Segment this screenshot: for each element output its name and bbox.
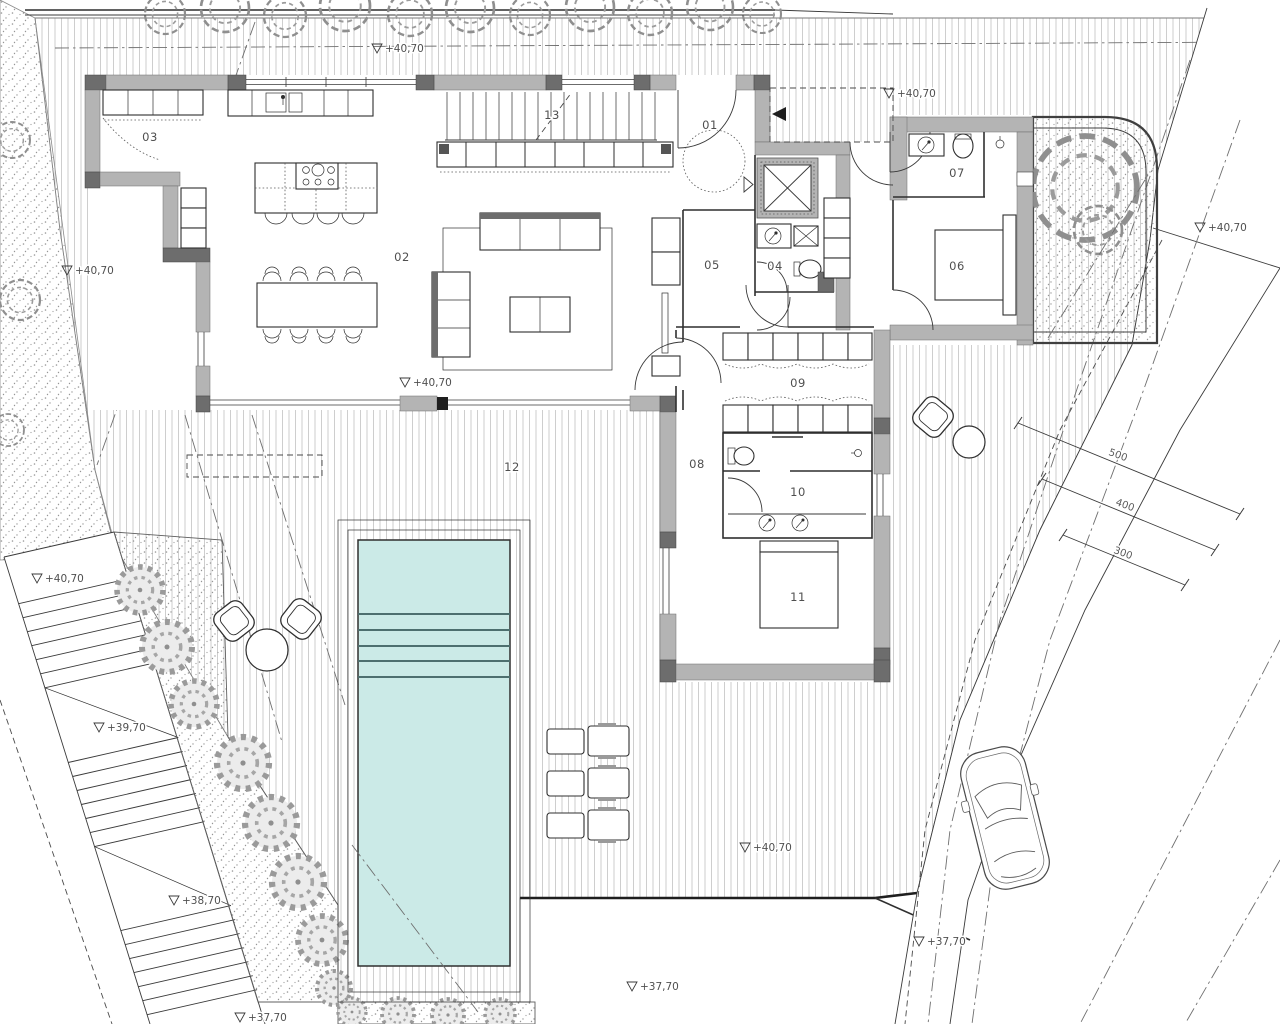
svg-text:+40,70: +40,70 xyxy=(75,265,114,277)
svg-text:+40,70: +40,70 xyxy=(45,573,84,585)
room-label-08: 08 xyxy=(689,457,705,471)
floor-plan-page: 500 400 300 xyxy=(0,0,1280,1024)
bedroom-06 xyxy=(935,215,1016,315)
svg-text:+37,70: +37,70 xyxy=(640,981,679,993)
svg-text:+40,70: +40,70 xyxy=(385,43,424,55)
patio-table xyxy=(246,629,288,671)
svg-text:+40,70: +40,70 xyxy=(897,88,936,100)
svg-text:+39,70: +39,70 xyxy=(107,722,146,734)
room-label-01: 01 xyxy=(702,118,718,132)
garden-court xyxy=(1033,117,1157,343)
room-label-10: 10 xyxy=(790,485,806,499)
elevation-triangle-icon xyxy=(627,982,637,991)
room-label-09: 09 xyxy=(790,376,806,390)
room-label-13: 13 xyxy=(544,108,560,122)
svg-text:+37,70: +37,70 xyxy=(248,1012,287,1024)
sun-loungers xyxy=(547,723,629,843)
elevator-shaft xyxy=(757,158,818,218)
svg-text:+37,70: +37,70 xyxy=(927,936,966,948)
room-label-04: 04 xyxy=(767,259,783,273)
svg-text:+40,70: +40,70 xyxy=(413,377,452,389)
pool-group xyxy=(338,520,530,1012)
room-label-06: 06 xyxy=(949,259,965,273)
patio-table xyxy=(953,426,985,458)
bed-11 xyxy=(760,541,838,628)
room-label-03: 03 xyxy=(142,130,158,144)
room-label-02: 02 xyxy=(394,250,410,264)
room-label-12: 12 xyxy=(504,460,520,474)
elevation-marker-11: +37,70 xyxy=(627,981,679,993)
room-label-11: 11 xyxy=(790,590,806,604)
svg-text:+40,70: +40,70 xyxy=(1208,222,1247,234)
room-label-07: 07 xyxy=(949,166,965,180)
svg-text:+40,70: +40,70 xyxy=(753,842,792,854)
corridor-wardrobe xyxy=(824,198,850,278)
site-plan-drawing: 500 400 300 xyxy=(0,0,1280,1024)
room-label-05: 05 xyxy=(704,258,720,272)
svg-text:+38,70: +38,70 xyxy=(182,895,221,907)
pool-water xyxy=(358,540,510,966)
